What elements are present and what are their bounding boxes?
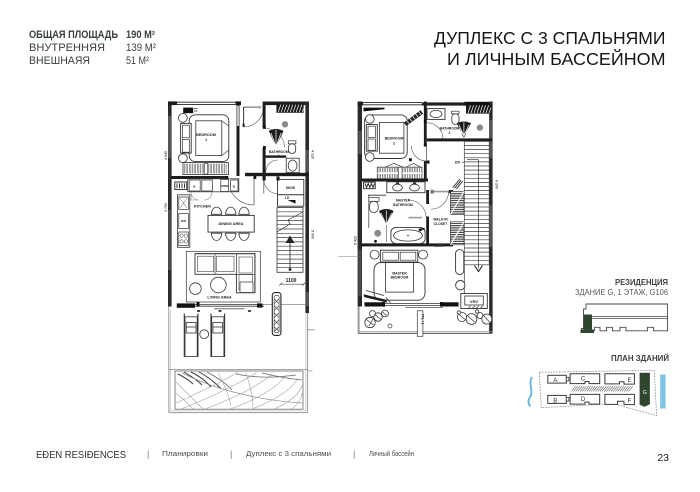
svg-text:EĐEN RESIĐENCES: EĐEN RESIĐENCES	[36, 449, 126, 461]
svg-text:И ЛИЧНЫМ БАССЕЙНОМ: И ЛИЧНЫМ БАССЕЙНОМ	[447, 48, 666, 69]
svg-text:51 М²: 51 М²	[126, 55, 149, 67]
svg-text:DINING AREA: DINING AREA	[219, 222, 244, 226]
svg-text:A: A	[553, 378, 557, 384]
svg-text:1: 1	[205, 138, 207, 142]
svg-text:LIVING AREA: LIVING AREA	[207, 296, 232, 300]
svg-text:3 750: 3 750	[164, 203, 168, 212]
svg-text:190 М²: 190 М²	[126, 29, 155, 41]
svg-text:1.500: 1.500	[435, 244, 444, 248]
svg-text:139 М²: 139 М²	[126, 42, 156, 54]
svg-text:BEDROOM: BEDROOM	[391, 276, 409, 280]
svg-text:23: 23	[657, 452, 669, 464]
svg-text:D: D	[581, 397, 586, 403]
svg-text:1100: 1100	[286, 278, 297, 284]
svg-text:G: G	[643, 390, 647, 396]
svg-text:2: 2	[393, 141, 395, 145]
svg-text:SHOE: SHOE	[286, 186, 296, 190]
svg-text:B.: B.	[233, 184, 236, 188]
svg-text:FFL +1: FFL +1	[421, 314, 425, 325]
svg-text:BATHROOM: BATHROOM	[393, 203, 413, 207]
svg-text:KITCHEN: KITCHEN	[194, 205, 211, 209]
svg-text:РЕЗИДЕНЦИЯ: РЕЗИДЕНЦИЯ	[615, 278, 668, 287]
svg-text:LD: LD	[285, 196, 290, 200]
svg-text:Планировки: Планировки	[162, 449, 208, 458]
svg-text:2: 2	[449, 131, 451, 135]
svg-text:6 200: 6 200	[494, 180, 498, 189]
svg-text:B.: B.	[193, 184, 196, 188]
svg-text:|: |	[147, 449, 149, 459]
svg-text:ДУПЛЕКС С 3 СПАЛЬНЯМИ: ДУПЛЕКС С 3 СПАЛЬНЯМИ	[434, 28, 666, 48]
svg-text:|: |	[230, 449, 232, 459]
svg-text:5 420: 5 420	[353, 236, 357, 245]
svg-text:|: |	[353, 449, 355, 459]
svg-text:ПЛАН ЗДАНИЙ: ПЛАН ЗДАНИЙ	[611, 352, 669, 363]
svg-text:ВНУТРЕННЯЯ: ВНУТРЕННЯЯ	[29, 42, 105, 54]
svg-text:ЗДАНИЕ G, 1 ЭТАЖ, G106: ЗДАНИЕ G, 1 ЭТАЖ, G106	[575, 288, 669, 297]
svg-text:B: B	[553, 398, 557, 404]
svg-text:DN: DN	[455, 161, 460, 165]
svg-text:4 540: 4 540	[164, 151, 168, 160]
svg-text:ОБЩАЯ ПЛОЩАДЬ: ОБЩАЯ ПЛОЩАДЬ	[29, 29, 118, 41]
svg-text:VRV: VRV	[470, 299, 478, 304]
svg-text:C: C	[581, 377, 586, 383]
svg-text:E: E	[627, 378, 631, 384]
svg-text:WINE: WINE	[221, 184, 228, 188]
svg-text:Дуплекс с 3 спальнями: Дуплекс с 3 спальнями	[246, 449, 331, 458]
svg-text:4 120: 4 120	[310, 150, 314, 159]
svg-text:5 900: 5 900	[310, 230, 314, 239]
svg-text:F: F	[628, 398, 632, 404]
svg-text:BEDROOM: BEDROOM	[385, 137, 404, 141]
svg-text:CLOSET: CLOSET	[434, 222, 449, 226]
svg-text:ВНЕШНАЯЯ: ВНЕШНАЯЯ	[29, 55, 90, 67]
svg-text:BEDROOM: BEDROOM	[196, 133, 216, 137]
svg-text:DW: DW	[181, 219, 186, 223]
svg-text:Личный бассейн: Личный бассейн	[369, 449, 414, 458]
